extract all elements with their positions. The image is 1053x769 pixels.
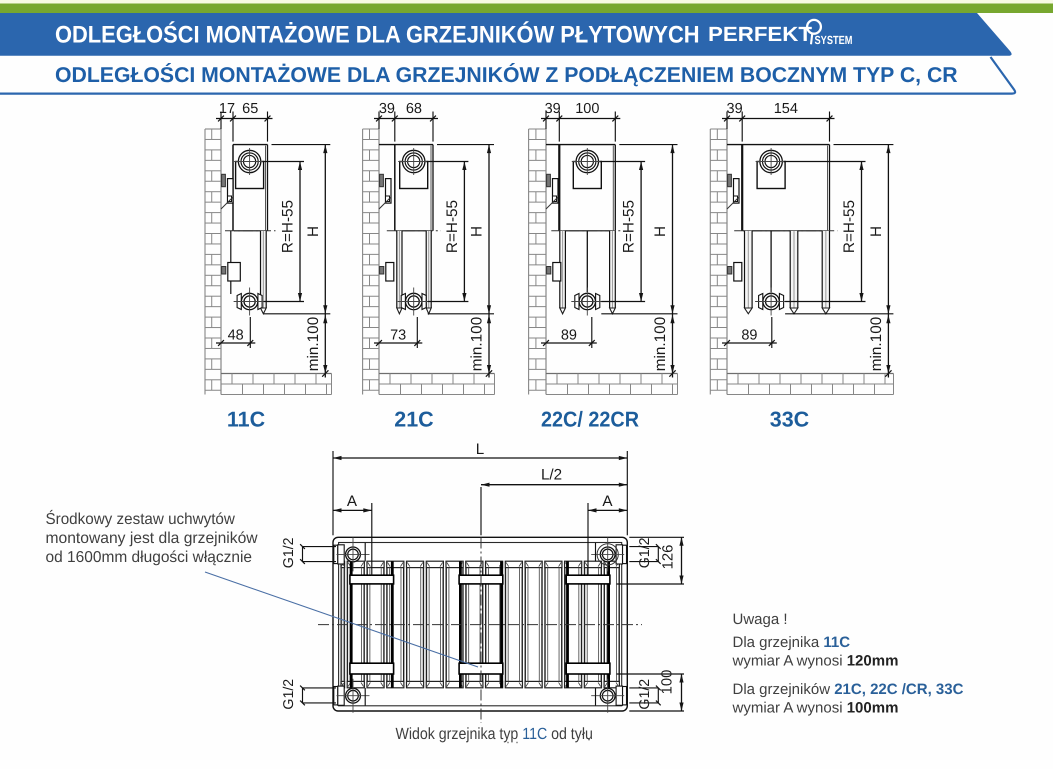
svg-text:33C: 33C (770, 408, 809, 432)
svg-text:Widok grzejnika typ 11C od tył: Widok grzejnika typ 11C od tyłu (396, 725, 593, 743)
svg-text:G1/2: G1/2 (637, 537, 653, 568)
svg-text:39: 39 (545, 101, 561, 117)
svg-text:R=H-55: R=H-55 (621, 200, 638, 253)
svg-text:L/2: L/2 (541, 467, 562, 484)
svg-text:R=H-55: R=H-55 (841, 200, 858, 253)
svg-text:68: 68 (406, 101, 422, 117)
svg-text:39: 39 (727, 101, 743, 117)
svg-text:100: 100 (575, 101, 599, 117)
svg-text:11C: 11C (227, 408, 265, 432)
svg-text:21C: 21C (394, 408, 433, 432)
svg-text:wymiar A wynosi 120mm: wymiar A wynosi 120mm (732, 653, 899, 670)
svg-text:H: H (652, 226, 669, 237)
svg-text:R=H-55: R=H-55 (280, 200, 297, 253)
svg-text:89: 89 (561, 328, 577, 344)
svg-text:G1/2: G1/2 (281, 537, 297, 568)
svg-text:G1/2: G1/2 (281, 679, 297, 710)
svg-text:H: H (305, 226, 322, 237)
svg-text:22C/ 22CR: 22C/ 22CR (541, 408, 639, 432)
svg-text:154: 154 (774, 101, 798, 117)
svg-text:Uwaga !: Uwaga ! (733, 611, 788, 628)
svg-text:min.100: min.100 (469, 317, 486, 371)
svg-text:39: 39 (379, 101, 395, 117)
svg-text:A: A (347, 493, 358, 510)
svg-text:min.100: min.100 (868, 317, 885, 371)
svg-text:SYSTEM: SYSTEM (815, 33, 853, 47)
svg-text:L: L (476, 441, 484, 458)
svg-text:PERFEKT: PERFEKT (708, 23, 813, 46)
svg-text:89: 89 (741, 328, 757, 344)
svg-text:G1/2: G1/2 (637, 679, 653, 710)
svg-text:Dla grzejników 21C, 22C /CR, 3: Dla grzejników 21C, 22C /CR, 33C (733, 681, 964, 698)
svg-text:ODLEGŁOŚCI MONTAŻOWE DLA GRZ: ODLEGŁOŚCI MONTAŻOWE DLA GRZEJNIKÓW PŁYT… (55, 21, 700, 49)
svg-text:min.100: min.100 (305, 317, 322, 371)
svg-text:Dla grzejnika 11C: Dla grzejnika 11C (733, 634, 851, 651)
svg-text:montowany jest dla grzejników: montowany jest dla grzejników (46, 530, 259, 547)
svg-text:wymiar A wynosi 100mm: wymiar A wynosi 100mm (732, 700, 899, 717)
svg-text:R=H-55: R=H-55 (444, 200, 461, 253)
svg-text:ODLEGŁOŚCI MONTAŻOWE DLA GRZEJ: ODLEGŁOŚCI MONTAŻOWE DLA GRZEJNIKÓW Z PO… (55, 63, 958, 87)
svg-text:od 1600mm długości włącznie: od 1600mm długości włącznie (46, 549, 253, 566)
svg-text:min.100: min.100 (652, 317, 669, 371)
svg-text:100: 100 (660, 670, 676, 695)
svg-text:65: 65 (242, 101, 258, 117)
svg-text:H: H (868, 226, 885, 237)
svg-text:126: 126 (661, 545, 677, 570)
svg-text:H: H (469, 226, 486, 237)
svg-text:A: A (602, 493, 613, 510)
svg-text:Środkowy zestaw uchwytów: Środkowy zestaw uchwytów (46, 509, 236, 528)
svg-text:17: 17 (219, 101, 235, 117)
svg-text:48: 48 (228, 328, 244, 344)
svg-text:73: 73 (390, 328, 406, 344)
